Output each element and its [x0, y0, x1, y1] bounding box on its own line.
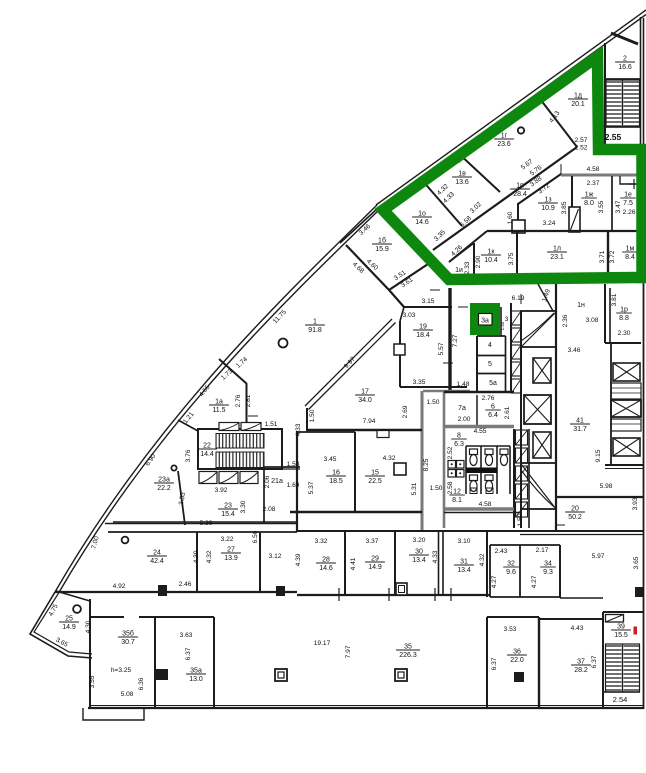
svg-text:1.45: 1.45	[500, 321, 505, 330]
svg-text:1и: 1и	[455, 267, 463, 274]
svg-text:30.7: 30.7	[121, 639, 135, 646]
svg-text:2.37: 2.37	[587, 180, 600, 187]
svg-text:2.55: 2.55	[605, 132, 622, 142]
svg-text:34.0: 34.0	[358, 397, 372, 404]
svg-text:2.17: 2.17	[536, 547, 549, 554]
svg-text:4.30: 4.30	[85, 620, 92, 633]
svg-text:22.5: 22.5	[368, 478, 382, 485]
svg-text:30: 30	[415, 549, 423, 556]
svg-text:4.30: 4.30	[193, 550, 200, 563]
svg-text:5: 5	[488, 361, 492, 368]
svg-text:4.33: 4.33	[432, 550, 439, 563]
svg-text:3.30: 3.30	[240, 500, 247, 513]
svg-text:2.36: 2.36	[562, 314, 569, 327]
svg-text:1а: 1а	[215, 399, 223, 406]
svg-text:22: 22	[203, 443, 211, 450]
svg-text:3.47: 3.47	[615, 200, 622, 213]
svg-text:5.57: 5.57	[438, 342, 445, 355]
svg-text:1м: 1м	[626, 246, 635, 253]
svg-text:4.32: 4.32	[479, 553, 486, 566]
svg-text:3.03: 3.03	[403, 312, 416, 319]
svg-text:2.61: 2.61	[504, 406, 511, 419]
svg-text:23.6: 23.6	[497, 141, 511, 148]
svg-text:31.7: 31.7	[573, 426, 587, 433]
svg-text:3.22: 3.22	[221, 536, 234, 543]
svg-text:27: 27	[227, 547, 235, 554]
svg-text:3.12: 3.12	[269, 553, 282, 560]
svg-text:6.19: 6.19	[512, 295, 525, 302]
svg-text:3.63: 3.63	[180, 632, 193, 639]
svg-text:8.8: 8.8	[619, 315, 629, 322]
svg-text:5а: 5а	[489, 380, 497, 387]
svg-text:4.55: 4.55	[474, 428, 487, 435]
svg-text:1.53: 1.53	[287, 461, 300, 468]
svg-text:3.71: 3.71	[599, 250, 606, 263]
svg-text:5.98: 5.98	[600, 483, 613, 490]
svg-text:3.55: 3.55	[89, 675, 96, 688]
svg-text:14.6: 14.6	[319, 565, 333, 572]
svg-text:14.9: 14.9	[368, 564, 382, 571]
svg-text:2.81: 2.81	[245, 394, 252, 407]
svg-text:17: 17	[361, 389, 369, 396]
svg-text:6.37: 6.37	[491, 657, 498, 670]
svg-text:4.39: 4.39	[295, 553, 302, 566]
svg-text:1е: 1е	[624, 192, 632, 199]
svg-text:1.51: 1.51	[265, 421, 278, 428]
svg-text:3.53: 3.53	[504, 626, 517, 633]
svg-text:5.08: 5.08	[121, 691, 134, 698]
svg-text:15.4: 15.4	[221, 511, 235, 518]
svg-text:6.37: 6.37	[591, 655, 598, 668]
svg-text:1.50: 1.50	[309, 409, 316, 422]
svg-text:5.39: 5.39	[200, 520, 213, 527]
svg-text:31: 31	[460, 559, 468, 566]
svg-text:1.50: 1.50	[430, 485, 443, 492]
svg-text:13.4: 13.4	[457, 567, 471, 574]
svg-text:1.50: 1.50	[427, 399, 440, 406]
svg-text:7.97: 7.97	[345, 645, 352, 658]
svg-text:2.54: 2.54	[613, 695, 628, 704]
svg-text:34: 34	[544, 561, 552, 568]
svg-text:4.33: 4.33	[295, 423, 302, 436]
svg-text:9.15: 9.15	[595, 449, 602, 462]
svg-text:2.00: 2.00	[458, 416, 471, 423]
svg-text:3.76: 3.76	[185, 449, 192, 462]
svg-text:3.85: 3.85	[561, 201, 568, 214]
svg-text:42.4: 42.4	[150, 558, 164, 565]
svg-text:2.43: 2.43	[495, 548, 508, 555]
svg-text:3.65: 3.65	[633, 556, 640, 569]
svg-text:3.10: 3.10	[458, 538, 471, 545]
svg-text:16: 16	[332, 470, 340, 477]
svg-text:28.2: 28.2	[574, 667, 588, 674]
svg-text:3.37: 3.37	[366, 538, 379, 545]
svg-text:4: 4	[488, 342, 492, 349]
svg-text:1р: 1р	[620, 307, 628, 314]
svg-text:3а: 3а	[481, 318, 489, 325]
svg-text:3: 3	[505, 316, 509, 323]
svg-text:1п: 1п	[516, 183, 524, 190]
svg-text:1: 1	[313, 319, 317, 326]
svg-text:10.4: 10.4	[484, 257, 498, 264]
svg-text:41: 41	[576, 418, 584, 425]
svg-text:3.15: 3.15	[422, 298, 435, 305]
svg-text:6.36: 6.36	[138, 677, 145, 690]
svg-text:19.17: 19.17	[314, 640, 331, 647]
svg-text:3.55: 3.55	[598, 200, 605, 213]
svg-text:3.46: 3.46	[568, 347, 581, 354]
svg-text:1.69: 1.69	[287, 482, 300, 489]
svg-text:23а: 23а	[158, 477, 170, 484]
svg-text:2.52: 2.52	[575, 145, 588, 152]
svg-text:8: 8	[457, 433, 461, 440]
svg-text:24: 24	[153, 550, 161, 557]
svg-text:2.06: 2.06	[264, 475, 271, 488]
svg-text:2.58: 2.58	[447, 481, 454, 494]
svg-text:22.2: 22.2	[157, 485, 171, 492]
svg-text:1к: 1к	[488, 249, 496, 256]
svg-text:14.6: 14.6	[415, 219, 429, 226]
svg-text:3.72: 3.72	[609, 250, 616, 263]
svg-text:9.3: 9.3	[543, 569, 553, 576]
svg-text:4.32: 4.32	[383, 455, 396, 462]
svg-text:1.60: 1.60	[507, 211, 514, 224]
svg-text:9.6: 9.6	[506, 569, 516, 576]
svg-text:3.93: 3.93	[632, 497, 639, 510]
svg-text:1л: 1л	[553, 246, 561, 253]
svg-text:3.35: 3.35	[413, 379, 426, 386]
svg-text:18.5: 18.5	[329, 478, 343, 485]
svg-text:10.9: 10.9	[541, 205, 555, 212]
svg-text:3.08: 3.08	[586, 317, 599, 324]
svg-text:15: 15	[371, 470, 379, 477]
svg-text:2.52: 2.52	[447, 446, 454, 459]
svg-text:226.3: 226.3	[399, 652, 417, 659]
svg-text:h=3.25: h=3.25	[111, 667, 132, 674]
svg-text:25: 25	[65, 616, 73, 623]
svg-text:7.27: 7.27	[452, 334, 459, 347]
svg-text:1ж: 1ж	[585, 192, 594, 199]
svg-text:14.9: 14.9	[62, 624, 76, 631]
svg-text:2.76: 2.76	[482, 395, 495, 402]
svg-text:11.5: 11.5	[212, 407, 225, 414]
svg-text:8.1: 8.1	[452, 497, 462, 504]
svg-text:50.2: 50.2	[568, 514, 582, 521]
svg-text:7а: 7а	[458, 405, 466, 412]
svg-text:8.4: 8.4	[625, 254, 635, 261]
svg-text:2.30: 2.30	[618, 330, 631, 337]
svg-text:3.92: 3.92	[215, 487, 228, 494]
svg-text:5.31: 5.31	[411, 482, 418, 495]
svg-text:1б: 1б	[378, 237, 386, 245]
svg-text:2.08: 2.08	[263, 506, 276, 513]
svg-text:28.4: 28.4	[513, 191, 527, 198]
svg-text:1.50: 1.50	[517, 513, 524, 526]
svg-text:91.8: 91.8	[308, 327, 322, 334]
svg-text:21а: 21а	[271, 478, 283, 485]
svg-text:13.0: 13.0	[189, 676, 203, 683]
svg-text:28: 28	[322, 557, 330, 564]
svg-text:13.9: 13.9	[224, 555, 238, 562]
svg-text:2.69: 2.69	[402, 405, 409, 418]
svg-text:1г: 1г	[501, 133, 508, 140]
svg-text:6: 6	[491, 404, 495, 411]
svg-text:20: 20	[571, 506, 579, 513]
svg-text:12: 12	[453, 489, 461, 496]
svg-text:15.9: 15.9	[375, 246, 389, 253]
svg-text:4.58: 4.58	[479, 501, 492, 508]
svg-text:16.6: 16.6	[618, 64, 632, 71]
svg-text:7.94: 7.94	[363, 418, 376, 425]
svg-text:5.37: 5.37	[308, 481, 315, 494]
svg-text:4.92: 4.92	[113, 583, 126, 590]
svg-text:35: 35	[404, 644, 412, 651]
svg-text:14.4: 14.4	[200, 451, 214, 458]
svg-text:36: 36	[513, 649, 521, 656]
svg-text:2.26: 2.26	[623, 209, 636, 216]
svg-text:1д: 1д	[574, 93, 582, 100]
svg-text:23.1: 23.1	[550, 254, 564, 261]
svg-text:1о: 1о	[418, 211, 426, 218]
svg-text:3.75: 3.75	[508, 252, 515, 265]
svg-text:3.45: 3.45	[324, 456, 337, 463]
svg-text:32: 32	[507, 561, 515, 568]
svg-text:3.24: 3.24	[543, 220, 556, 227]
svg-text:6.3: 6.3	[454, 441, 464, 448]
svg-text:29: 29	[371, 556, 379, 563]
svg-text:8.25: 8.25	[423, 458, 430, 471]
svg-text:1з: 1з	[544, 197, 551, 204]
svg-text:4.27: 4.27	[531, 575, 538, 588]
svg-text:6.56: 6.56	[252, 530, 259, 543]
svg-text:3.81: 3.81	[611, 293, 618, 306]
svg-text:23: 23	[224, 503, 232, 510]
svg-text:4.41: 4.41	[350, 557, 357, 570]
svg-text:5.97: 5.97	[592, 553, 605, 560]
svg-text:13.6: 13.6	[455, 179, 469, 186]
svg-text:15.5: 15.5	[614, 632, 628, 639]
svg-text:35а: 35а	[190, 668, 202, 675]
svg-text:1.48: 1.48	[457, 381, 470, 388]
svg-text:13.4: 13.4	[412, 557, 426, 564]
svg-text:1н: 1н	[577, 302, 585, 309]
svg-text:2: 2	[623, 56, 627, 63]
svg-text:18.4: 18.4	[416, 332, 430, 339]
svg-text:8.0: 8.0	[584, 200, 594, 207]
svg-text:3.32: 3.32	[315, 538, 328, 545]
svg-text:2.76: 2.76	[235, 394, 242, 407]
svg-text:7.5: 7.5	[623, 200, 633, 207]
svg-text:20.1: 20.1	[571, 101, 585, 108]
svg-text:35б: 35б	[122, 630, 134, 638]
svg-text:3.20: 3.20	[413, 537, 426, 544]
svg-text:4.27: 4.27	[491, 575, 498, 588]
svg-text:6.4: 6.4	[488, 412, 498, 419]
svg-text:4.43: 4.43	[571, 625, 584, 632]
svg-text:22.0: 22.0	[510, 657, 524, 664]
svg-text:19: 19	[419, 324, 427, 331]
svg-text:1в: 1в	[458, 171, 466, 178]
svg-text:39: 39	[617, 624, 625, 631]
svg-text:4.32: 4.32	[206, 550, 213, 563]
svg-text:4.58: 4.58	[587, 166, 600, 173]
svg-text:6.37: 6.37	[185, 647, 192, 660]
svg-text:2.33: 2.33	[464, 261, 471, 274]
svg-text:2.90: 2.90	[475, 255, 482, 268]
svg-text:37: 37	[577, 659, 585, 666]
svg-text:2.57: 2.57	[575, 137, 588, 144]
svg-text:2.46: 2.46	[179, 581, 192, 588]
